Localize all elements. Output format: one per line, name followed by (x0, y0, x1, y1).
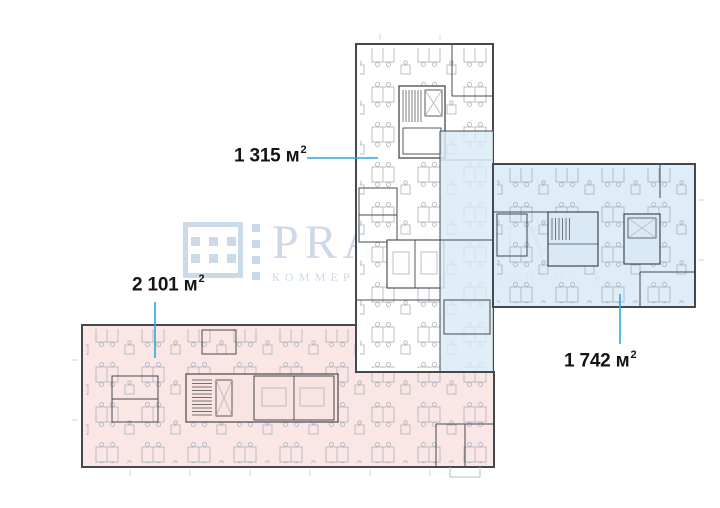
area-label-right-wing: 1 742 м2 (564, 350, 635, 372)
stair-core-top-wing (399, 86, 445, 158)
area-label-top-wing: 1 315 м2 (234, 145, 305, 167)
floor-plan (0, 0, 720, 508)
stair-core-right-wing (548, 212, 598, 266)
floor-plan-figure: PRAEDIUM КОММЕРЧЕСКАЯ НЕДВИЖИМОСТЬ (0, 0, 720, 508)
entrance-canopy (450, 467, 480, 477)
lift-core-right-wing (624, 214, 660, 264)
area-label-left-wing: 2 101 м2 (132, 274, 203, 296)
zone-right-wing (493, 164, 695, 307)
meeting-rooms-top-wing (387, 240, 444, 288)
zone-blue-column (440, 131, 493, 372)
stair-core-bottom-wing (186, 374, 338, 422)
